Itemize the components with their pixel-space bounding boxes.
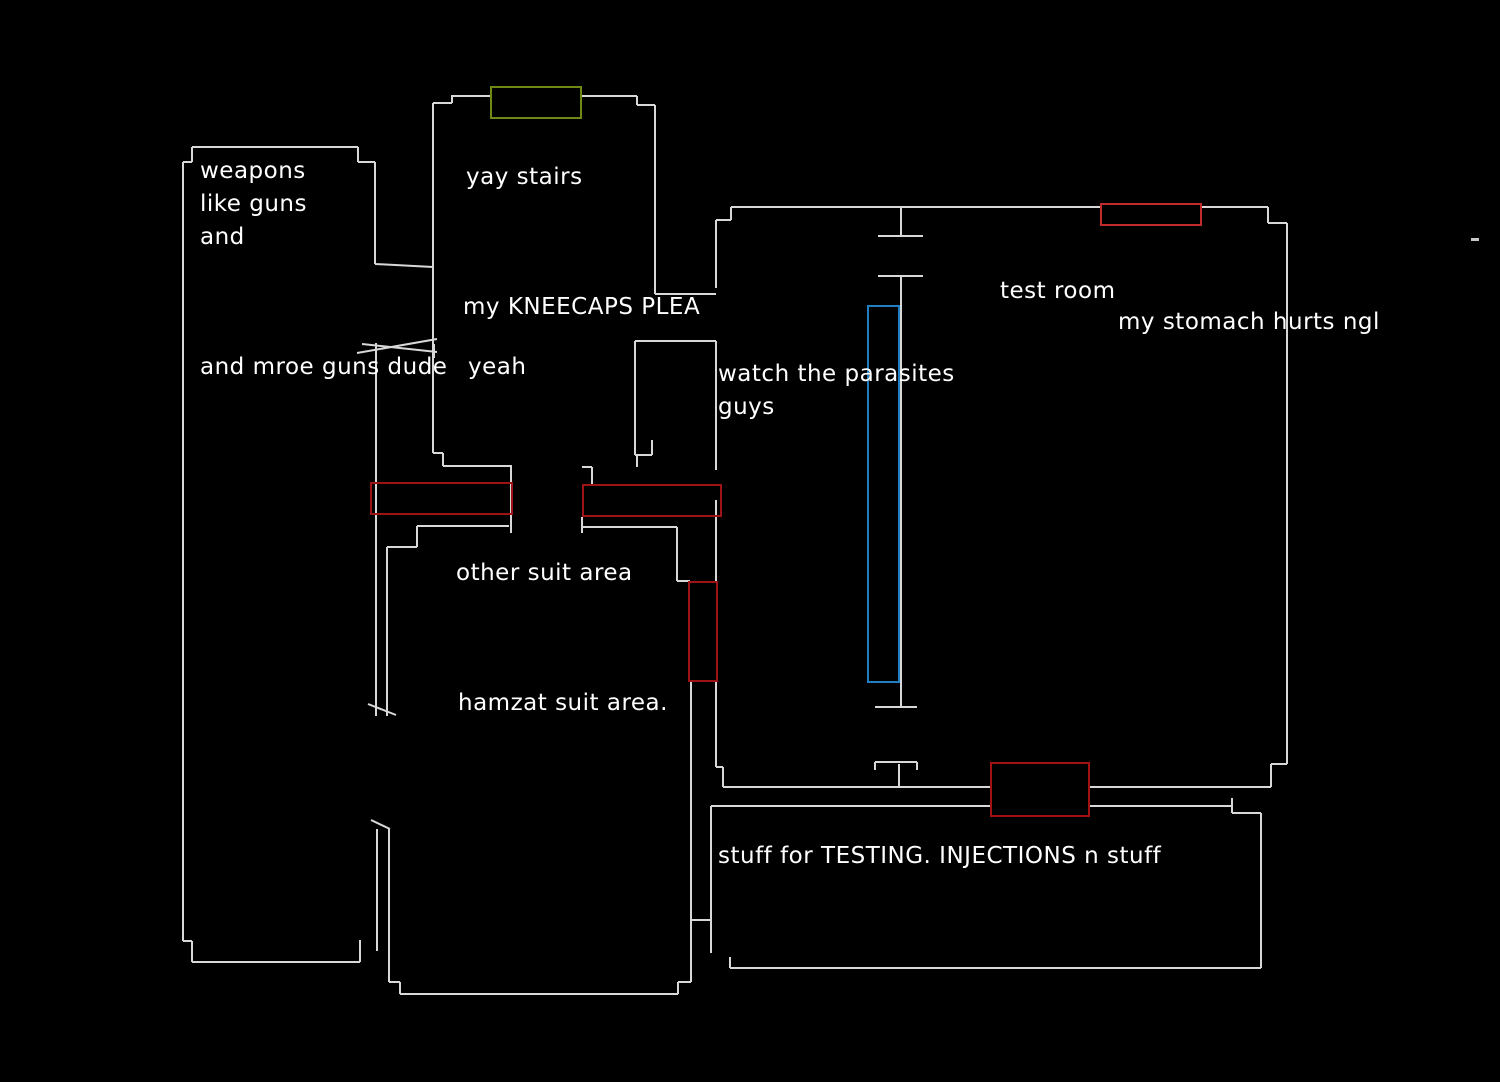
label-other-suit: other suit area xyxy=(456,562,633,585)
label-weapons-line2: like guns xyxy=(200,193,307,216)
label-kneecaps: my KNEECAPS PLEA xyxy=(463,296,700,319)
door-marker-left xyxy=(370,482,513,515)
label-yay-stairs: yay stairs xyxy=(466,166,583,189)
label-parasites-2: guys xyxy=(718,396,775,419)
stairs-marker xyxy=(490,86,582,119)
label-weapons-line3: and xyxy=(200,226,245,249)
wall-injection-room xyxy=(711,798,1261,968)
door-marker-middle xyxy=(688,581,718,682)
label-more-guns: and mroe guns dude xyxy=(200,356,447,379)
door-marker-top xyxy=(1100,203,1202,226)
floorplan-canvas: weaponslike gunsandyay stairsmy KNEECAPS… xyxy=(0,0,1500,1082)
label-testing-stuff: stuff for TESTING. INJECTIONS n stuff xyxy=(718,845,1161,868)
label-weapons-line1: weapons xyxy=(200,160,306,183)
label-yeah: yeah xyxy=(468,356,526,379)
label-parasites-1: watch the parasites xyxy=(718,363,955,386)
door-marker-bottom xyxy=(990,762,1090,817)
label-hamzat-suit: hamzat suit area. xyxy=(458,692,668,715)
label-test-room: test room xyxy=(1000,280,1115,303)
stray-dash-mark xyxy=(1471,238,1479,241)
label-stomach: my stomach hurts ngl xyxy=(1118,311,1380,334)
wall-weapons-room xyxy=(183,103,711,994)
door-marker-right xyxy=(582,484,722,517)
